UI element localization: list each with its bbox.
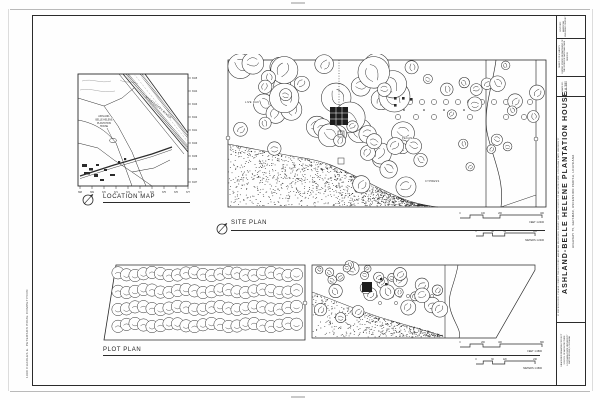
habs-drawing-sheet: 1990 CHARLES E. PETERSON PRIZE COMPETITI… [0, 0, 600, 400]
tree [503, 142, 512, 151]
tree [447, 110, 456, 119]
tree [459, 139, 468, 148]
tree [491, 134, 502, 145]
svg-text:676: 676 [174, 192, 179, 194]
tree [367, 134, 382, 149]
live-oak-label: LIVE OAK [245, 100, 259, 104]
svg-text:3340: 3340 [192, 143, 198, 145]
svg-text:3339: 3339 [192, 156, 198, 158]
tree [468, 97, 482, 111]
svg-text:677: 677 [186, 192, 191, 194]
tree [364, 265, 371, 272]
svg-text:100: 100 [481, 213, 486, 215]
cypress-label: CYPRESS [425, 179, 440, 183]
tree [329, 284, 342, 297]
sheet-info-cell: SHEET 2 OF 8 SHEETS UNITED STATES DEPART… [559, 39, 570, 74]
tree [294, 76, 309, 91]
tree [401, 300, 416, 315]
tree [380, 285, 395, 300]
tree [530, 85, 545, 100]
plantation-house-footprint [330, 107, 348, 125]
tree [507, 106, 517, 116]
svg-text:METERS 1:2400: METERS 1:2400 [525, 239, 544, 242]
tree [459, 77, 469, 87]
tree [361, 271, 369, 279]
tree [432, 301, 448, 317]
site-plan-drawing: LIVE OAK PECAN CYPRESS [224, 54, 550, 212]
credit-line: BATON ROUGE, LOUISIANA [569, 321, 572, 379]
river-bank-line [228, 144, 438, 207]
svg-text:3341: 3341 [192, 130, 198, 132]
site-plan-scale-bars: 0100200400FEET 1:240003060120METERS 1:24… [456, 209, 548, 243]
tree [315, 266, 323, 274]
pecan-label: PECAN [402, 136, 412, 140]
svg-text:FEET 1:2400: FEET 1:2400 [529, 221, 544, 224]
tree [352, 305, 364, 317]
svg-text:675: 675 [162, 192, 167, 194]
tree [394, 268, 407, 281]
tree [234, 122, 248, 136]
svg-text:3344: 3344 [192, 91, 198, 93]
sheet-main-title: ASHLAND-BELLE HELENE PLANTATION HOUSE [562, 91, 569, 294]
tree [501, 61, 510, 70]
scan-mark-bottom [291, 396, 305, 398]
tree-canopies [314, 261, 447, 323]
tree [490, 76, 506, 92]
tree [423, 74, 432, 83]
boundary-marker [303, 301, 307, 305]
svg-text:120: 120 [503, 359, 508, 361]
tree [242, 54, 264, 74]
location-map-title: LOCATION MAP [103, 194, 155, 200]
north-arrow-icon [215, 221, 229, 235]
tree-canopies [228, 54, 545, 197]
sheet-subtitle: HIGHWAY 75, GEISMAR, ASCENSION PARISH, L… [571, 155, 575, 248]
batture-stipple [228, 146, 429, 206]
svg-text:60: 60 [504, 231, 507, 233]
plot-plan-drawing [84, 256, 540, 348]
tree [374, 272, 384, 282]
outbuilding [385, 283, 387, 285]
tree [377, 83, 391, 97]
scan-mark-top [291, 2, 305, 4]
tree [415, 288, 430, 303]
tree [466, 163, 474, 171]
competition-note: 1990 CHARLES E. PETERSON PRIZE COMPETITI… [25, 289, 29, 378]
paper-edge-bottom [10, 391, 590, 392]
tree [527, 111, 539, 123]
svg-text:60: 60 [491, 359, 494, 361]
svg-text:0: 0 [475, 231, 477, 233]
svg-text:METERS 1:4800: METERS 1:4800 [523, 367, 542, 370]
tree [280, 89, 292, 101]
site-plan-title: SITE PLAN [231, 220, 267, 226]
tree [432, 285, 442, 295]
tree [343, 265, 350, 272]
tree [336, 312, 346, 322]
tree [347, 121, 358, 132]
tree [353, 176, 370, 193]
tree [336, 273, 344, 281]
orchard-row [112, 300, 303, 316]
tree [380, 161, 397, 178]
orchard-row [112, 283, 303, 299]
paper-edge-left [8, 9, 9, 391]
paper-edge-right [592, 9, 593, 391]
site-label-line3: PLANTATION [97, 122, 111, 125]
orchard-row [112, 266, 303, 282]
svg-text:240: 240 [533, 359, 538, 361]
location-map-drawing: ASHLAND- BELLE HELENE PLANTATION HOUSE M… [74, 68, 206, 198]
tree [259, 117, 271, 129]
svg-text:3337: 3337 [192, 182, 198, 184]
tree [487, 145, 496, 154]
svg-text:800: 800 [540, 342, 545, 344]
svg-text:400: 400 [540, 213, 545, 215]
tree [395, 288, 403, 296]
plot-plan-scale-bars: 0200400800FEET 1:4800060120240METERS 1:4… [454, 338, 546, 370]
tree [405, 61, 418, 74]
department-note: UNITED STATES DEPARTMENT OF THE INTERIOR… [562, 39, 570, 74]
svg-text:0: 0 [459, 213, 461, 215]
svg-text:3338: 3338 [192, 169, 198, 171]
tree [406, 138, 422, 154]
outbuilding [380, 278, 382, 280]
boundary-marker-west [226, 136, 230, 140]
credits-cell: MEASURED DRAWING PROJECT SCHOOL OF ARCHI… [561, 321, 572, 379]
plantation-house-footprint [362, 282, 372, 292]
svg-text:3345: 3345 [192, 78, 198, 80]
svg-text:400: 400 [498, 342, 503, 344]
survey-title-cell: HISTORIC AMERICAN BUILDINGS SURVEY [560, 16, 568, 37]
tree [470, 84, 482, 96]
site-label-line1: ASHLAND- [98, 115, 110, 118]
tree [325, 268, 334, 277]
paper-edge-top [10, 9, 590, 10]
north-arrow-icon [81, 192, 95, 206]
svg-text:0: 0 [459, 342, 461, 344]
tree [396, 177, 416, 197]
tree [314, 303, 326, 315]
tree [268, 142, 281, 155]
river-road [445, 265, 460, 338]
svg-text:30: 30 [491, 231, 494, 233]
svg-text:200: 200 [481, 342, 486, 344]
svg-text:0: 0 [475, 359, 477, 361]
location-map-underline [103, 202, 190, 203]
tree [414, 153, 427, 166]
tree [259, 80, 272, 93]
svg-text:120: 120 [533, 231, 538, 233]
survey-title: HISTORIC AMERICAN BUILDINGS SURVEY [560, 16, 568, 37]
svg-text:3342: 3342 [192, 117, 198, 119]
svg-text:FEET 1:4800: FEET 1:4800 [527, 350, 542, 353]
orchard-row [112, 317, 303, 333]
orchard-garland-rows [112, 266, 303, 333]
tree [315, 55, 334, 74]
svg-text:200: 200 [498, 213, 503, 215]
plot-plan-title: PLOT PLAN [103, 347, 141, 353]
tree [328, 275, 337, 284]
site-label-line2: BELLE HELENE [96, 119, 113, 121]
boundary-marker [534, 137, 538, 141]
site-label-line4: HOUSE [100, 126, 109, 128]
reproduction-credit-note: IF REPRODUCED, PLEASE CREDIT THE HISTORI… [558, 137, 560, 316]
title-block-divider [556, 15, 557, 386]
tree [387, 138, 404, 155]
tree [441, 83, 454, 96]
title-block-line [557, 76, 586, 77]
svg-text:3343: 3343 [192, 104, 198, 106]
